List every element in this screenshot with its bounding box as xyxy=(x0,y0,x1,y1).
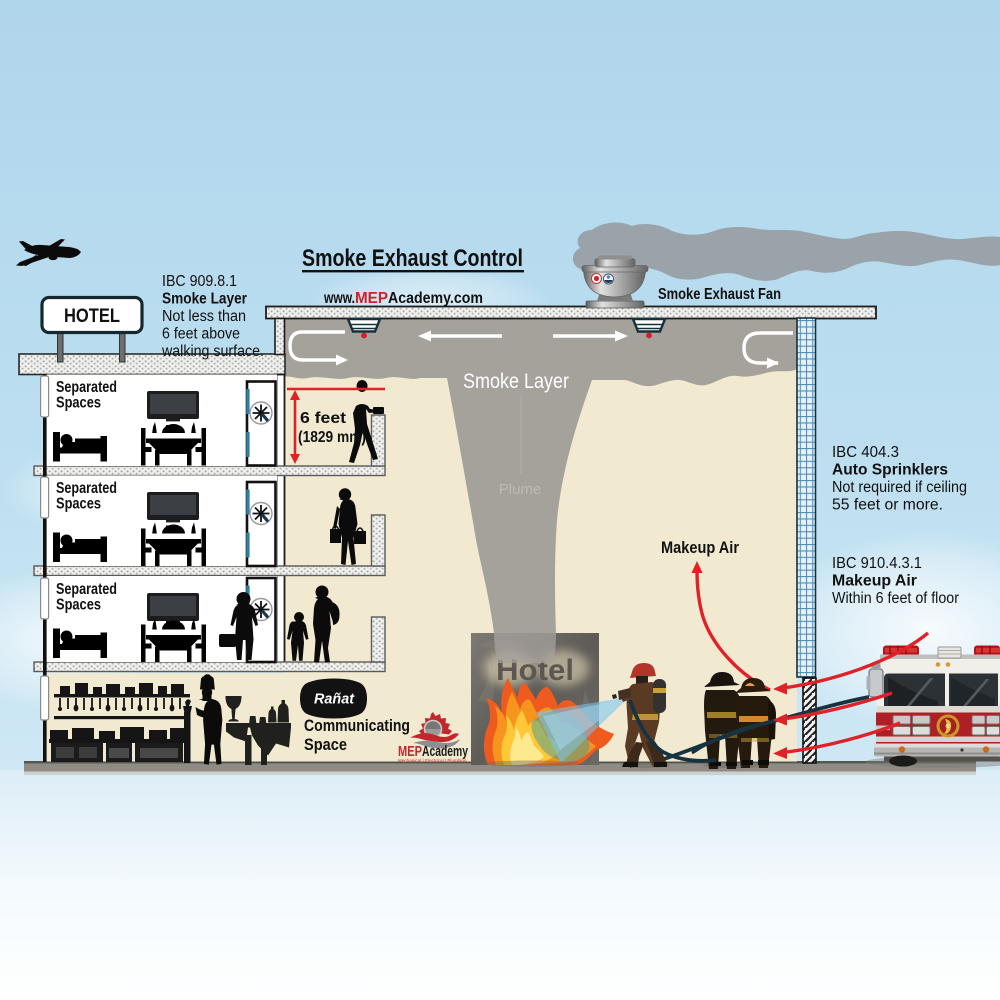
svg-text:6 feet above: 6 feet above xyxy=(162,326,240,343)
svg-text:Separated: Separated xyxy=(56,379,117,396)
svg-text:IBC 910.4.3.1: IBC 910.4.3.1 xyxy=(832,555,922,572)
svg-text:Spaces: Spaces xyxy=(56,496,101,513)
svg-text:Mechanical | Electrical | Plum: Mechanical | Electrical | Plumbing xyxy=(398,758,467,763)
svg-text:Smoke Exhaust Fan: Smoke Exhaust Fan xyxy=(658,286,781,303)
svg-text:Makeup Air: Makeup Air xyxy=(832,573,917,590)
svg-text:55 feet or more.: 55 feet or more. xyxy=(832,497,943,514)
svg-text:Within 6 feet of floor: Within 6 feet of floor xyxy=(832,590,959,607)
svg-text:Smoke Layer: Smoke Layer xyxy=(162,291,247,308)
svg-text:Smoke Exhaust Control: Smoke Exhaust Control xyxy=(302,245,523,272)
svg-text:Spaces: Spaces xyxy=(56,597,101,614)
svg-text:Makeup Air: Makeup Air xyxy=(661,539,740,557)
svg-text:Smoke Layer: Smoke Layer xyxy=(463,370,569,393)
svg-text:HOTEL: HOTEL xyxy=(64,306,120,327)
svg-text:www.: www. xyxy=(323,290,355,307)
svg-text:IBC 909.8.1: IBC 909.8.1 xyxy=(162,273,237,290)
svg-text:Plume: Plume xyxy=(499,481,542,498)
svg-text:walking surface.: walking surface. xyxy=(161,343,264,360)
svg-text:Rañat: Rañat xyxy=(314,692,355,708)
svg-text:Communicating: Communicating xyxy=(304,717,410,735)
svg-text:Not required if ceiling: Not required if ceiling xyxy=(832,479,967,496)
svg-text:Academy.com: Academy.com xyxy=(388,290,483,307)
svg-text:Auto Sprinklers: Auto Sprinklers xyxy=(832,462,948,479)
svg-text:(1829 mm): (1829 mm) xyxy=(298,429,366,446)
svg-text:IBC 404.3: IBC 404.3 xyxy=(832,444,899,461)
svg-text:Spaces: Spaces xyxy=(56,395,101,412)
svg-text:Not less than: Not less than xyxy=(162,308,246,325)
svg-text:Separated: Separated xyxy=(56,480,117,497)
svg-text:6 feet: 6 feet xyxy=(300,410,346,427)
svg-text:Separated: Separated xyxy=(56,581,117,598)
svg-text:Space: Space xyxy=(304,736,347,754)
svg-text:MEP: MEP xyxy=(355,290,388,307)
